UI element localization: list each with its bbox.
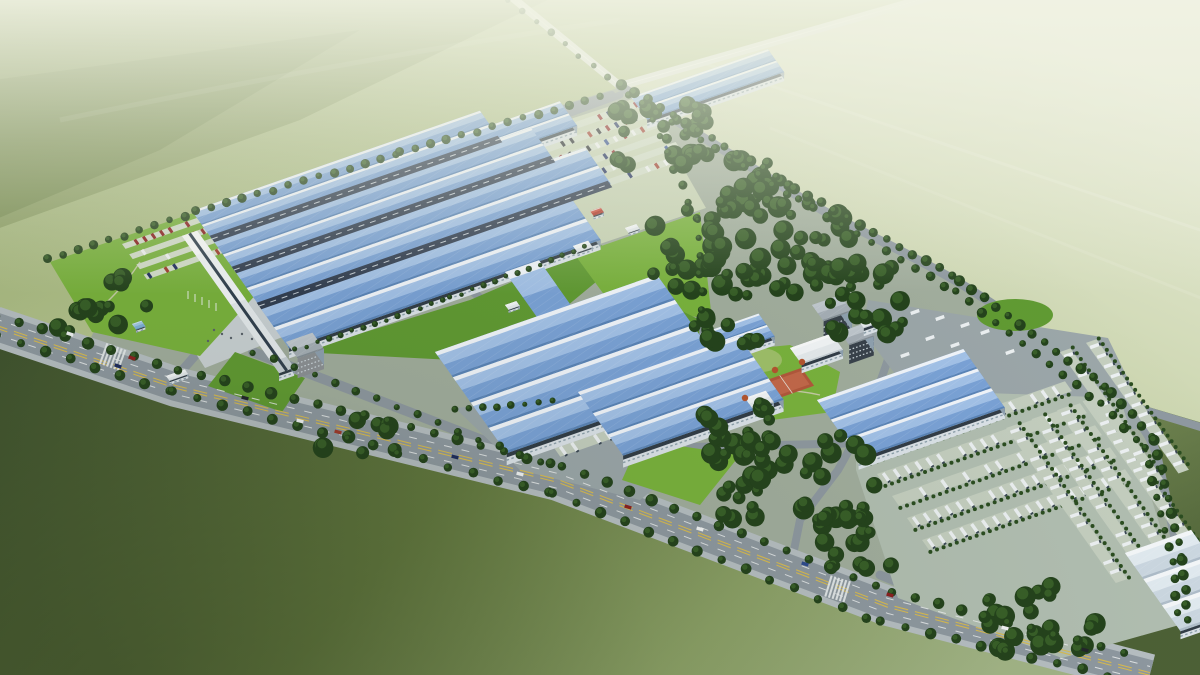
corner-vignette [0, 0, 1200, 675]
rendering-stage [0, 0, 1200, 675]
factory-campus-aerial-rendering [0, 0, 1200, 675]
